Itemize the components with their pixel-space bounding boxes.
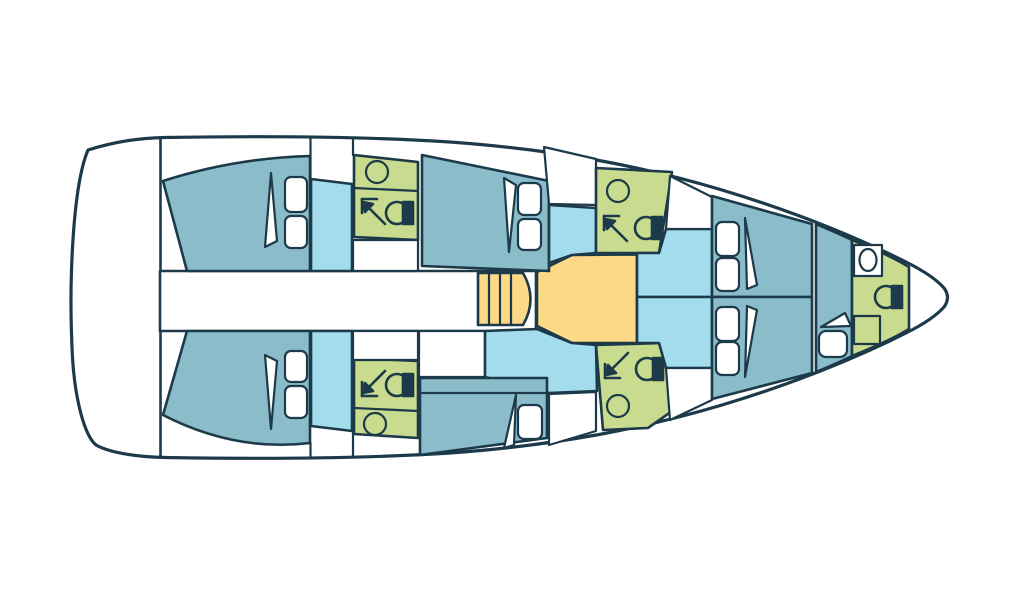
aft-cabin-port-bed [163, 156, 310, 271]
pillow [716, 307, 739, 341]
pillow [285, 351, 307, 382]
pillow [518, 183, 541, 215]
pillow [716, 222, 739, 256]
aft-cabin-starboard-floor [311, 331, 352, 431]
locker [419, 331, 485, 377]
pillow [285, 177, 307, 212]
aft-cabin-port-floor [311, 179, 352, 271]
deck-plan-canvas: Sailing yacht interior deck plan, top-do… [0, 0, 1024, 600]
pillow [285, 216, 307, 248]
pillow [819, 331, 847, 357]
locker [353, 240, 418, 271]
pillow [518, 405, 542, 439]
pillow [285, 386, 307, 418]
companionway-stairs [478, 273, 531, 325]
pillow [518, 219, 541, 250]
pillow [716, 342, 739, 375]
mid-cabin-port-floor [549, 205, 596, 263]
locker [544, 147, 596, 205]
yacht-deck-plan: Sailing yacht interior deck plan, top-do… [0, 0, 1024, 600]
pillow [716, 258, 739, 291]
locker [353, 331, 418, 360]
galley-area [537, 255, 637, 344]
